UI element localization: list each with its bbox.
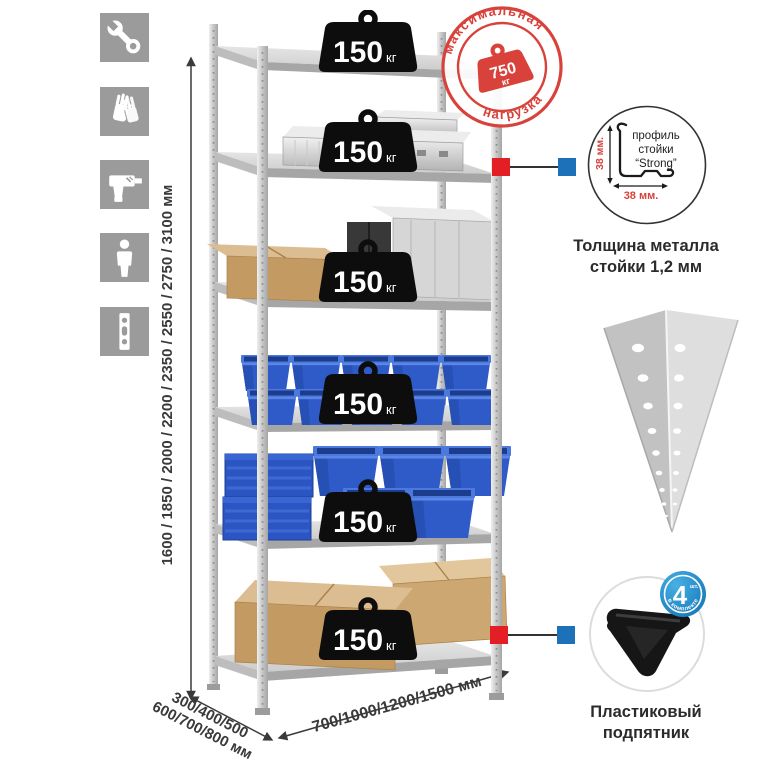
post-profile-detail: 38 мм. 38 мм. профиль стойки “Strong” [586, 104, 708, 226]
profile-label-line1: профиль [632, 130, 680, 142]
foot-caption: Пластиковый подпятник [560, 702, 732, 745]
upper-callout-blue-marker [558, 158, 576, 176]
weight-1: 150 кг [319, 12, 417, 72]
weight-3-unit: кг [386, 280, 397, 295]
gloves-icon [100, 87, 149, 136]
person-icon-glyph [100, 233, 149, 282]
drill-icon [100, 160, 149, 209]
weight-4-value: 150 [333, 388, 383, 421]
profile-vertical-dim-label: 38 мм. [594, 137, 606, 170]
weight-5-value: 150 [333, 506, 383, 539]
weight-6-value: 150 [333, 624, 383, 657]
profile-label-line2: стойки [638, 144, 673, 156]
plastic-foot-detail: 4 шт. в комплекте [586, 571, 710, 697]
wrench-icon [100, 13, 149, 62]
badge-unit: шт. [690, 584, 699, 590]
weight-1-value: 150 [333, 36, 383, 69]
lower-callout-blue-marker [557, 626, 575, 644]
angle-post-image [592, 300, 752, 550]
profile-caption-line1: Толщина металла [560, 236, 732, 257]
max-load-stamp: максимальная нагрузка 750 кг [436, 1, 568, 133]
upper-callout-line [508, 166, 560, 168]
lower-callout-red-marker [490, 626, 508, 644]
product-infographic: 1600 / 1850 / 2000 / 2200 / 2350 / 2550 … [0, 0, 765, 765]
weight-1-unit: кг [386, 50, 397, 65]
weight-6-unit: кг [386, 638, 397, 653]
profile-label-line3: “Strong” [635, 158, 677, 170]
drill-icon-glyph [100, 160, 149, 209]
weight-3-value: 150 [333, 266, 383, 299]
wrench-icon-glyph [100, 13, 149, 62]
weight-4-unit: кг [386, 402, 397, 417]
lower-callout-line [506, 634, 559, 636]
foot-caption-line2: подпятник [560, 723, 732, 744]
weight-5-unit: кг [386, 520, 397, 535]
perforated-profile-icon-glyph [100, 307, 149, 356]
profile-horizontal-dim-label: 38 мм. [624, 190, 659, 202]
foot-caption-line1: Пластиковый [560, 702, 732, 723]
perforated-profile-icon [100, 307, 149, 356]
quantity-badge: 4 шт. в комплекте [660, 571, 706, 617]
gloves-icon-glyph [100, 87, 149, 136]
profile-caption-line2: стойки 1,2 мм [560, 257, 732, 278]
upper-callout-red-marker [492, 158, 510, 176]
weight-2-value: 150 [333, 136, 383, 169]
person-icon [100, 233, 149, 282]
profile-caption: Толщина металла стойки 1,2 мм [560, 236, 732, 279]
weight-2-unit: кг [386, 150, 397, 165]
height-dimension-label: 1600 / 1850 / 2000 / 2200 / 2350 / 2550 … [159, 65, 181, 685]
